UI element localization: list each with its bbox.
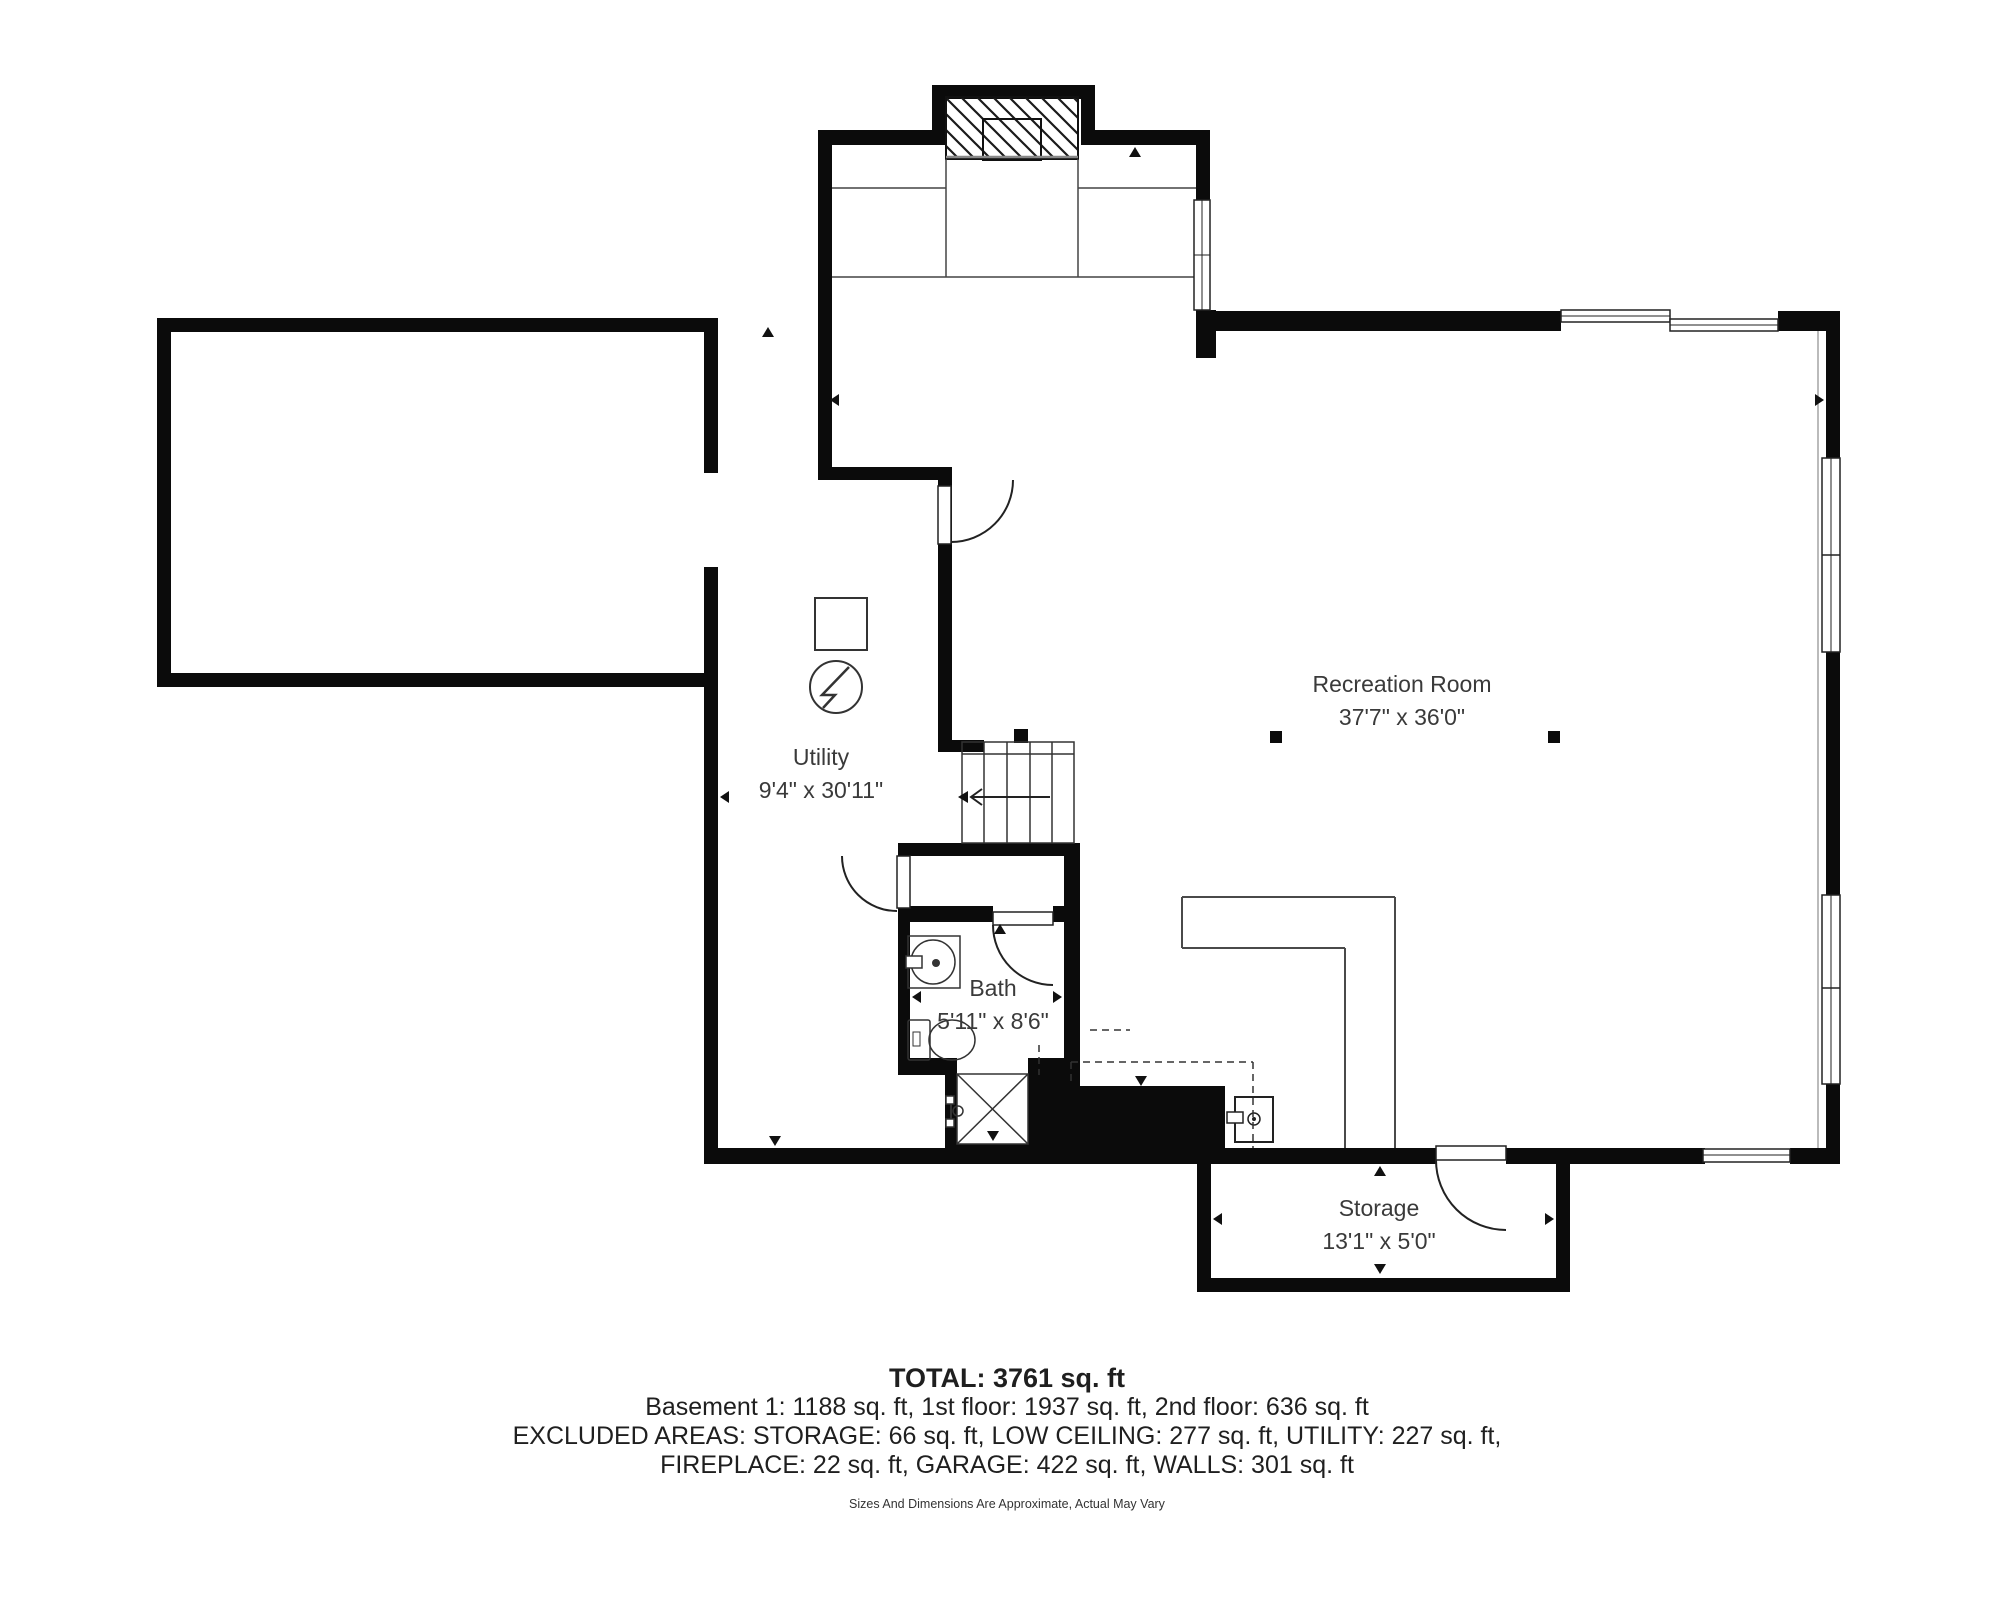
utility-room-label: Utility 9'4" x 30'11": [759, 741, 883, 807]
room-dimensions: 13'1" x 5'0": [1322, 1225, 1435, 1258]
sump-pump-icon: [1227, 1097, 1273, 1142]
recreation-room-label: Recreation Room 37'7" x 36'0": [1313, 668, 1492, 734]
window-east-upper: [1822, 458, 1840, 652]
shower-icon: [946, 1074, 1028, 1144]
window-top-right: [1561, 310, 1778, 331]
garage-room-walls: [157, 318, 718, 1148]
recreation-room-walls: [1196, 311, 1840, 1164]
door-hall-to-utility: [842, 856, 910, 911]
floor-plan-drawing: [0, 0, 2000, 1600]
window-south: [1703, 1149, 1790, 1162]
room-name: Utility: [793, 744, 849, 770]
stairs-direction-arrow-icon: [958, 789, 1050, 805]
utility-and-interior-walls: [704, 467, 1225, 1164]
door-nook-to-utility: [938, 480, 1013, 544]
room-name: Storage: [1339, 1195, 1420, 1221]
room-dimensions: 37'7" x 36'0": [1313, 701, 1492, 734]
water-heater-icon: [815, 598, 867, 650]
fireplace-hearth-lines: [832, 159, 1196, 277]
room-name: Recreation Room: [1313, 671, 1492, 697]
excluded-areas-text-1: EXCLUDED AREAS: STORAGE: 66 sq. ft, LOW …: [407, 1422, 1607, 1451]
electrical-panel-icon: [810, 661, 862, 713]
window-nook-east: [1194, 200, 1210, 310]
floor-plan-canvas: Recreation Room 37'7" x 36'0" Utility 9'…: [0, 0, 2000, 1600]
room-name: Bath: [969, 975, 1016, 1001]
storage-room-label: Storage 13'1" x 5'0": [1322, 1192, 1435, 1258]
disclaimer-text: Sizes And Dimensions Are Approximate, Ac…: [407, 1497, 1607, 1511]
total-area-text: TOTAL: 3761 sq. ft: [407, 1363, 1607, 1393]
bath-room-label: Bath 5'11" x 8'6": [937, 972, 1049, 1038]
area-summary: TOTAL: 3761 sq. ft Basement 1: 1188 sq. …: [407, 1363, 1607, 1511]
window-east-lower: [1822, 895, 1840, 1084]
room-dimensions: 5'11" x 8'6": [937, 1005, 1049, 1038]
excluded-areas-text-2: FIREPLACE: 22 sq. ft, GARAGE: 422 sq. ft…: [407, 1451, 1607, 1480]
door-storage: [1436, 1146, 1506, 1230]
floor-areas-text: Basement 1: 1188 sq. ft, 1st floor: 1937…: [407, 1393, 1607, 1422]
fireplace-icon: [946, 97, 1078, 160]
room-dimensions: 9'4" x 30'11": [759, 774, 883, 807]
